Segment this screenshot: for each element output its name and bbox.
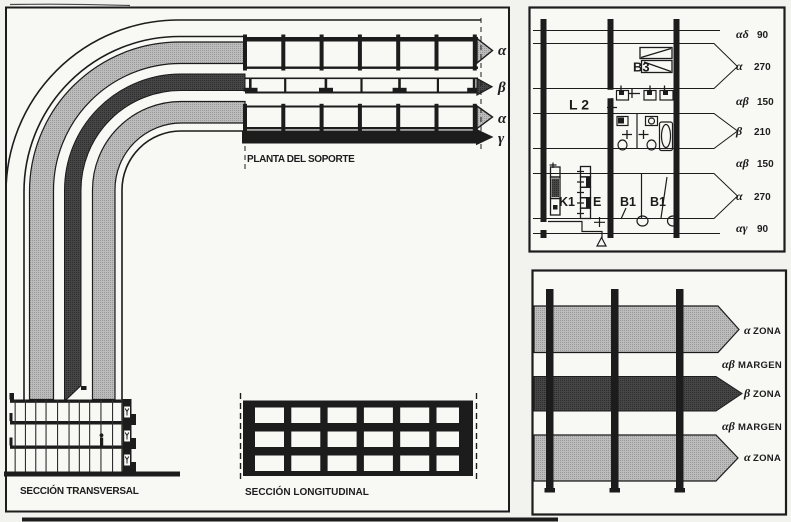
svg-text:α: α xyxy=(736,59,743,73)
svg-text:B3: B3 xyxy=(633,60,650,75)
svg-text:150: 150 xyxy=(757,159,774,170)
svg-text:αβ: αβ xyxy=(736,94,750,108)
svg-text:β: β xyxy=(497,80,506,96)
svg-text:B1: B1 xyxy=(620,195,636,209)
svg-text:K1: K1 xyxy=(559,195,575,209)
svg-text:ZONA: ZONA xyxy=(753,453,781,464)
svg-text:α: α xyxy=(498,111,507,127)
svg-text:E: E xyxy=(593,195,601,209)
svg-text:αβ: αβ xyxy=(722,357,736,371)
svg-text:150: 150 xyxy=(757,97,774,108)
svg-text:ZONA: ZONA xyxy=(753,389,781,400)
svg-text:L 2: L 2 xyxy=(569,97,589,113)
svg-text:α: α xyxy=(498,43,507,59)
svg-text:αβ: αβ xyxy=(722,419,736,433)
svg-text:90: 90 xyxy=(757,30,769,41)
svg-text:γ: γ xyxy=(498,131,505,147)
svg-text:PLANTA DEL SOPORTE: PLANTA DEL SOPORTE xyxy=(247,154,355,165)
svg-text:α: α xyxy=(744,450,751,464)
svg-text:β: β xyxy=(735,124,743,138)
svg-text:MARGEN: MARGEN xyxy=(738,360,782,371)
svg-text:αδ: αδ xyxy=(736,27,749,41)
svg-text:SECCIÓN LONGITUDINAL: SECCIÓN LONGITUDINAL xyxy=(245,485,369,498)
svg-text:α: α xyxy=(744,323,751,337)
svg-text:210: 210 xyxy=(754,127,771,138)
svg-text:B1: B1 xyxy=(650,195,666,209)
svg-text:αγ: αγ xyxy=(736,221,748,235)
svg-text:270: 270 xyxy=(754,192,771,203)
svg-text:αβ: αβ xyxy=(736,156,750,170)
svg-text:90: 90 xyxy=(757,224,769,235)
svg-text:ZONA: ZONA xyxy=(753,326,781,337)
svg-text:β: β xyxy=(743,386,751,400)
svg-text:α: α xyxy=(736,189,743,203)
svg-text:270: 270 xyxy=(754,62,771,73)
svg-text:SECCIÓN TRANSVERSAL: SECCIÓN TRANSVERSAL xyxy=(20,484,139,497)
svg-text:MARGEN: MARGEN xyxy=(738,422,782,433)
